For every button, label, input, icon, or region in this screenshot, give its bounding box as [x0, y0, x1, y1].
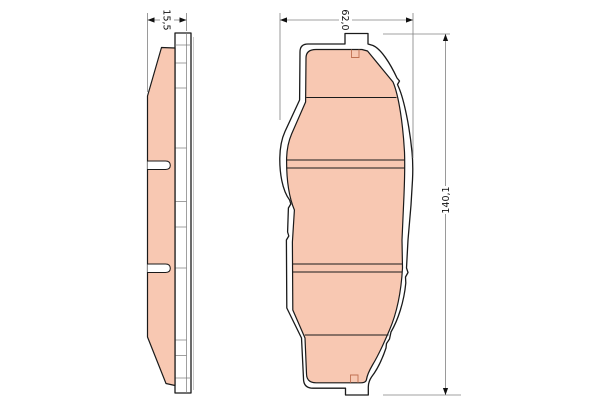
dimension-width-label: 62,0: [339, 9, 350, 30]
dimension-height-label: 140,1: [441, 186, 452, 213]
dimension-thickness-label: 15,5: [161, 9, 172, 30]
side-view: [148, 33, 194, 393]
wear-slot-lower: [148, 264, 171, 273]
arrowhead-left-icon: [148, 17, 155, 22]
technical-drawing-canvas: 15,5 62,0 140,1: [0, 0, 600, 400]
friction-material-side: [148, 48, 176, 386]
arrowhead-right-icon: [406, 17, 413, 22]
front-view: [280, 34, 413, 396]
arrowhead-down-icon: [443, 388, 448, 395]
arrowhead-left-icon: [280, 17, 287, 22]
arrowhead-right-icon: [180, 17, 187, 22]
brake-pad-technical-drawing: 15,5 62,0 140,1: [0, 0, 600, 400]
backing-plate-side: [175, 33, 191, 393]
wear-slot-upper: [148, 161, 171, 170]
arrowhead-up-icon: [443, 34, 448, 41]
